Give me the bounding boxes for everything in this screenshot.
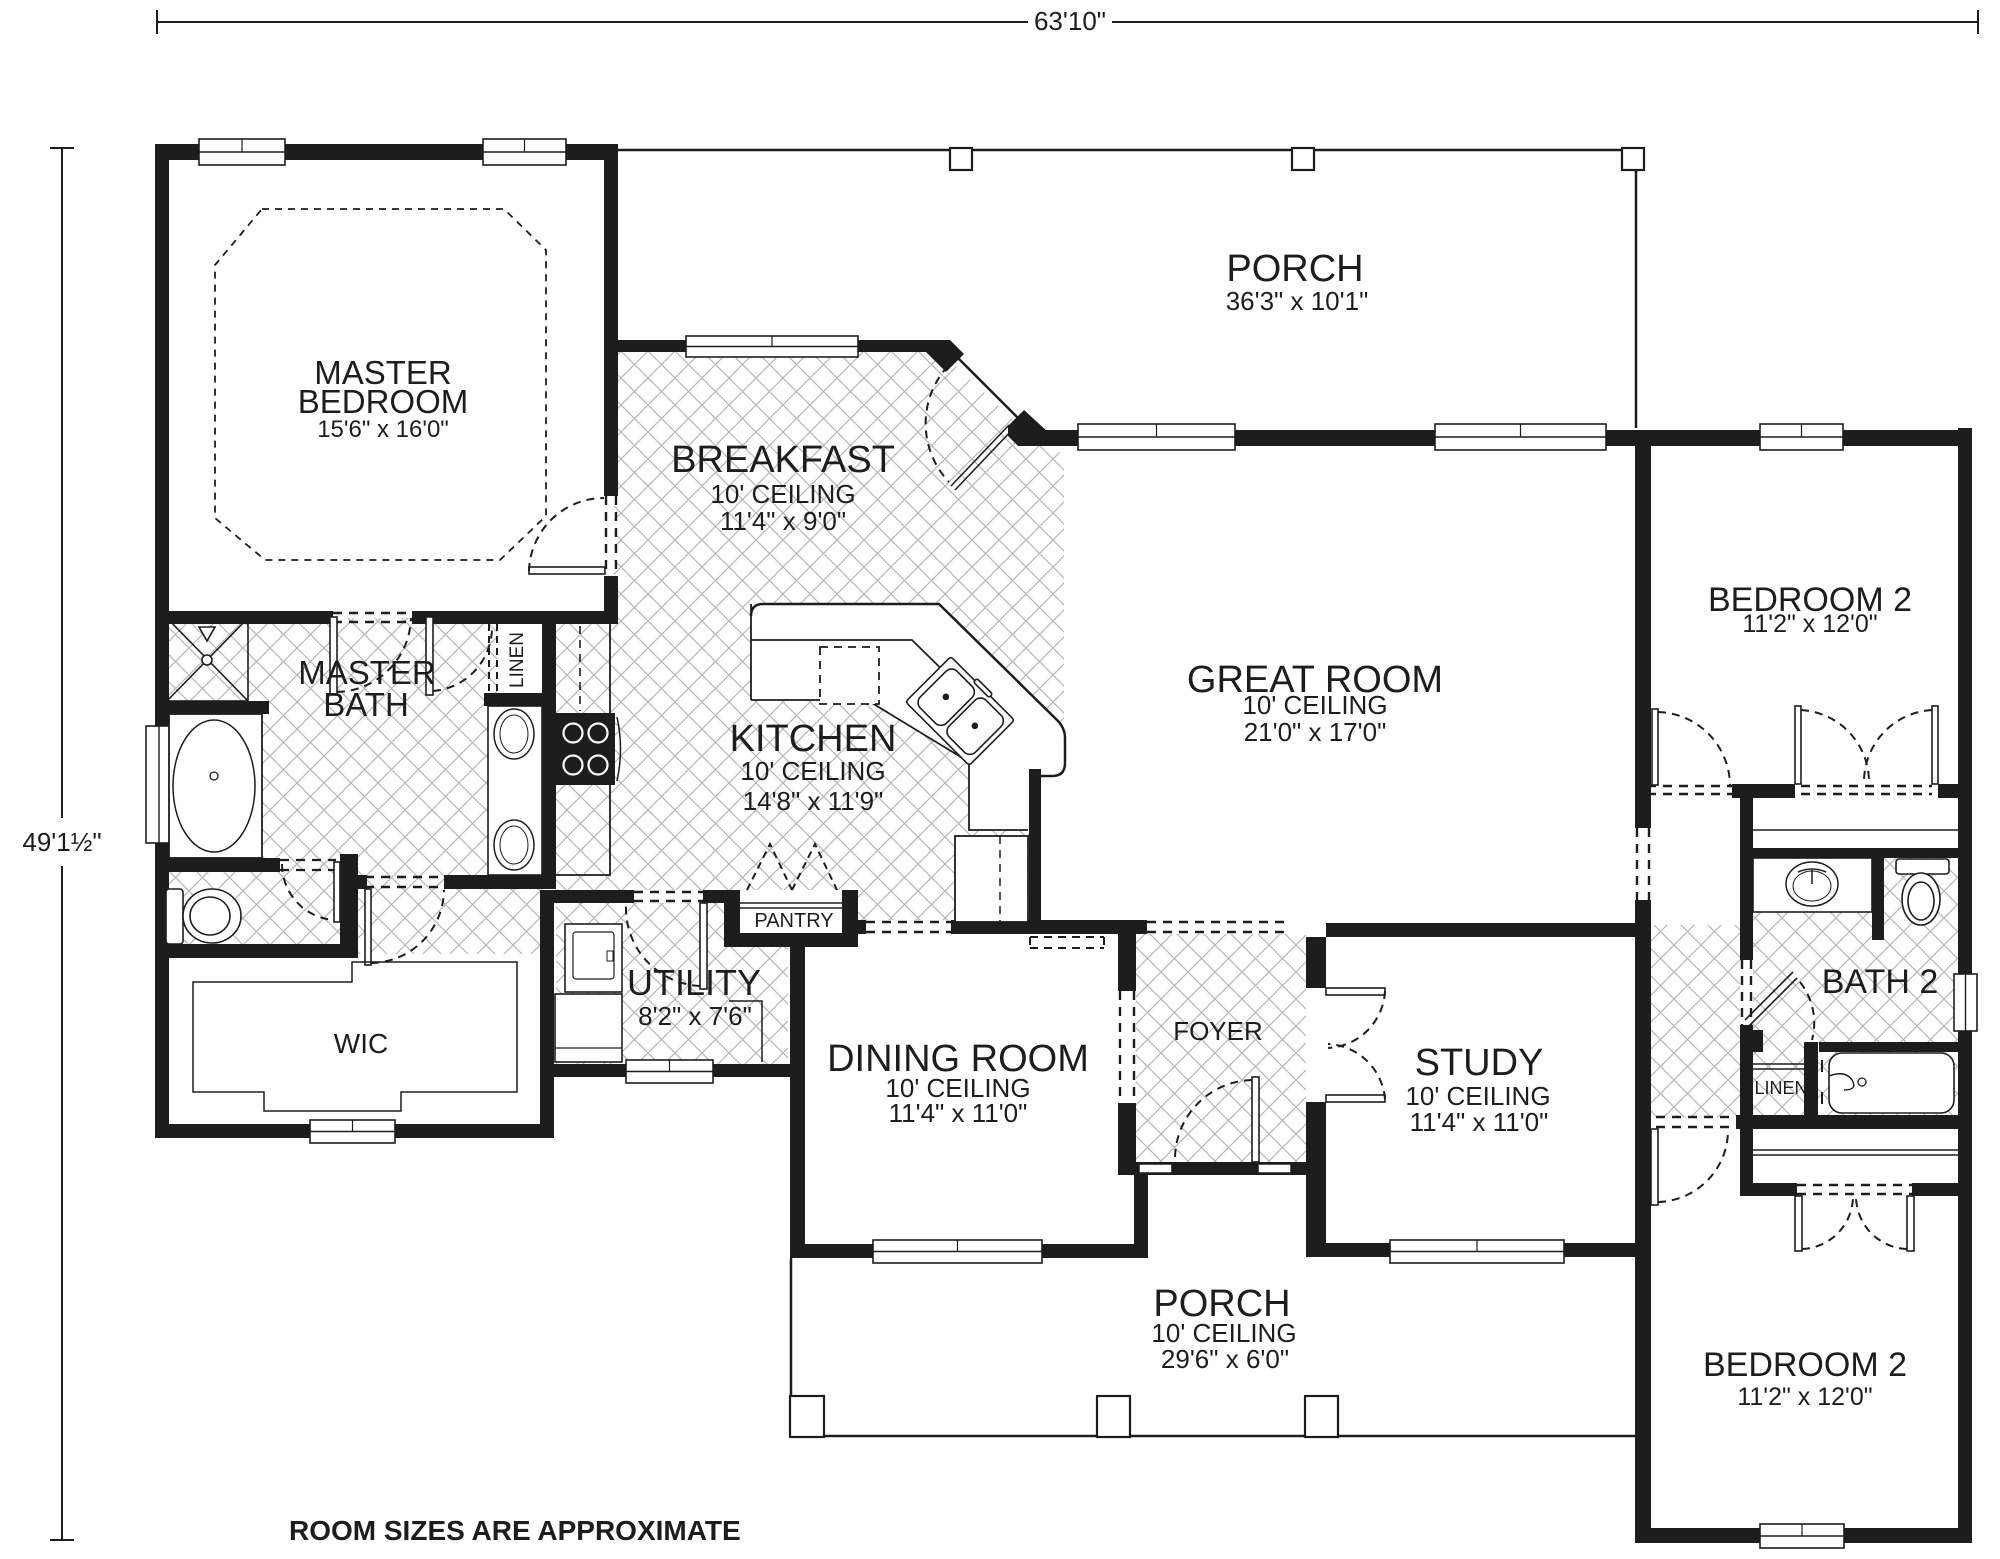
svg-text:FOYER: FOYER [1173, 1016, 1263, 1046]
svg-text:36'3" x 10'1": 36'3" x 10'1" [1226, 286, 1369, 316]
svg-text:11'2" x 12'0": 11'2" x 12'0" [1742, 610, 1877, 638]
svg-text:10' CEILING: 10' CEILING [710, 479, 855, 509]
svg-text:14'8" x 11'9": 14'8" x 11'9" [743, 786, 884, 816]
svg-text:BATH 2: BATH 2 [1822, 963, 1939, 1001]
svg-text:PANTRY: PANTRY [754, 910, 833, 932]
svg-text:LINEN: LINEN [1754, 1078, 1807, 1098]
svg-text:11'4" x 11'0": 11'4" x 11'0" [889, 1098, 1028, 1128]
svg-text:15'6" x 16'0": 15'6" x 16'0" [317, 416, 449, 443]
svg-text:BEDROOM 2: BEDROOM 2 [1703, 1346, 1907, 1384]
svg-text:WIC: WIC [334, 1028, 388, 1059]
svg-text:BATH: BATH [323, 686, 409, 723]
svg-text:STUDY: STUDY [1415, 1042, 1544, 1084]
svg-text:11'2" x 12'0": 11'2" x 12'0" [1737, 1383, 1872, 1411]
svg-text:11'4" x 9'0": 11'4" x 9'0" [720, 506, 846, 536]
svg-text:BREAKFAST: BREAKFAST [671, 439, 895, 481]
svg-text:29'6" x 6'0": 29'6" x 6'0" [1161, 1344, 1289, 1374]
svg-text:PORCH: PORCH [1226, 248, 1363, 290]
svg-text:49'1½": 49'1½" [22, 827, 101, 857]
svg-text:11'4" x 11'0": 11'4" x 11'0" [1410, 1107, 1549, 1137]
svg-text:10' CEILING: 10' CEILING [1242, 690, 1387, 720]
svg-text:21'0" x 17'0": 21'0" x 17'0" [1244, 717, 1387, 747]
svg-text:ROOM SIZES ARE APPROXIMATE: ROOM SIZES ARE APPROXIMATE [289, 1515, 741, 1546]
svg-text:KITCHEN: KITCHEN [730, 718, 897, 760]
svg-text:LINEN: LINEN [507, 632, 528, 688]
svg-text:8'2" x 7'6": 8'2" x 7'6" [638, 1001, 752, 1031]
svg-text:UTILITY: UTILITY [627, 962, 761, 1003]
svg-text:10' CEILING: 10' CEILING [740, 756, 885, 786]
svg-text:BEDROOM: BEDROOM [298, 383, 469, 420]
svg-text:63'10": 63'10" [1034, 6, 1106, 36]
